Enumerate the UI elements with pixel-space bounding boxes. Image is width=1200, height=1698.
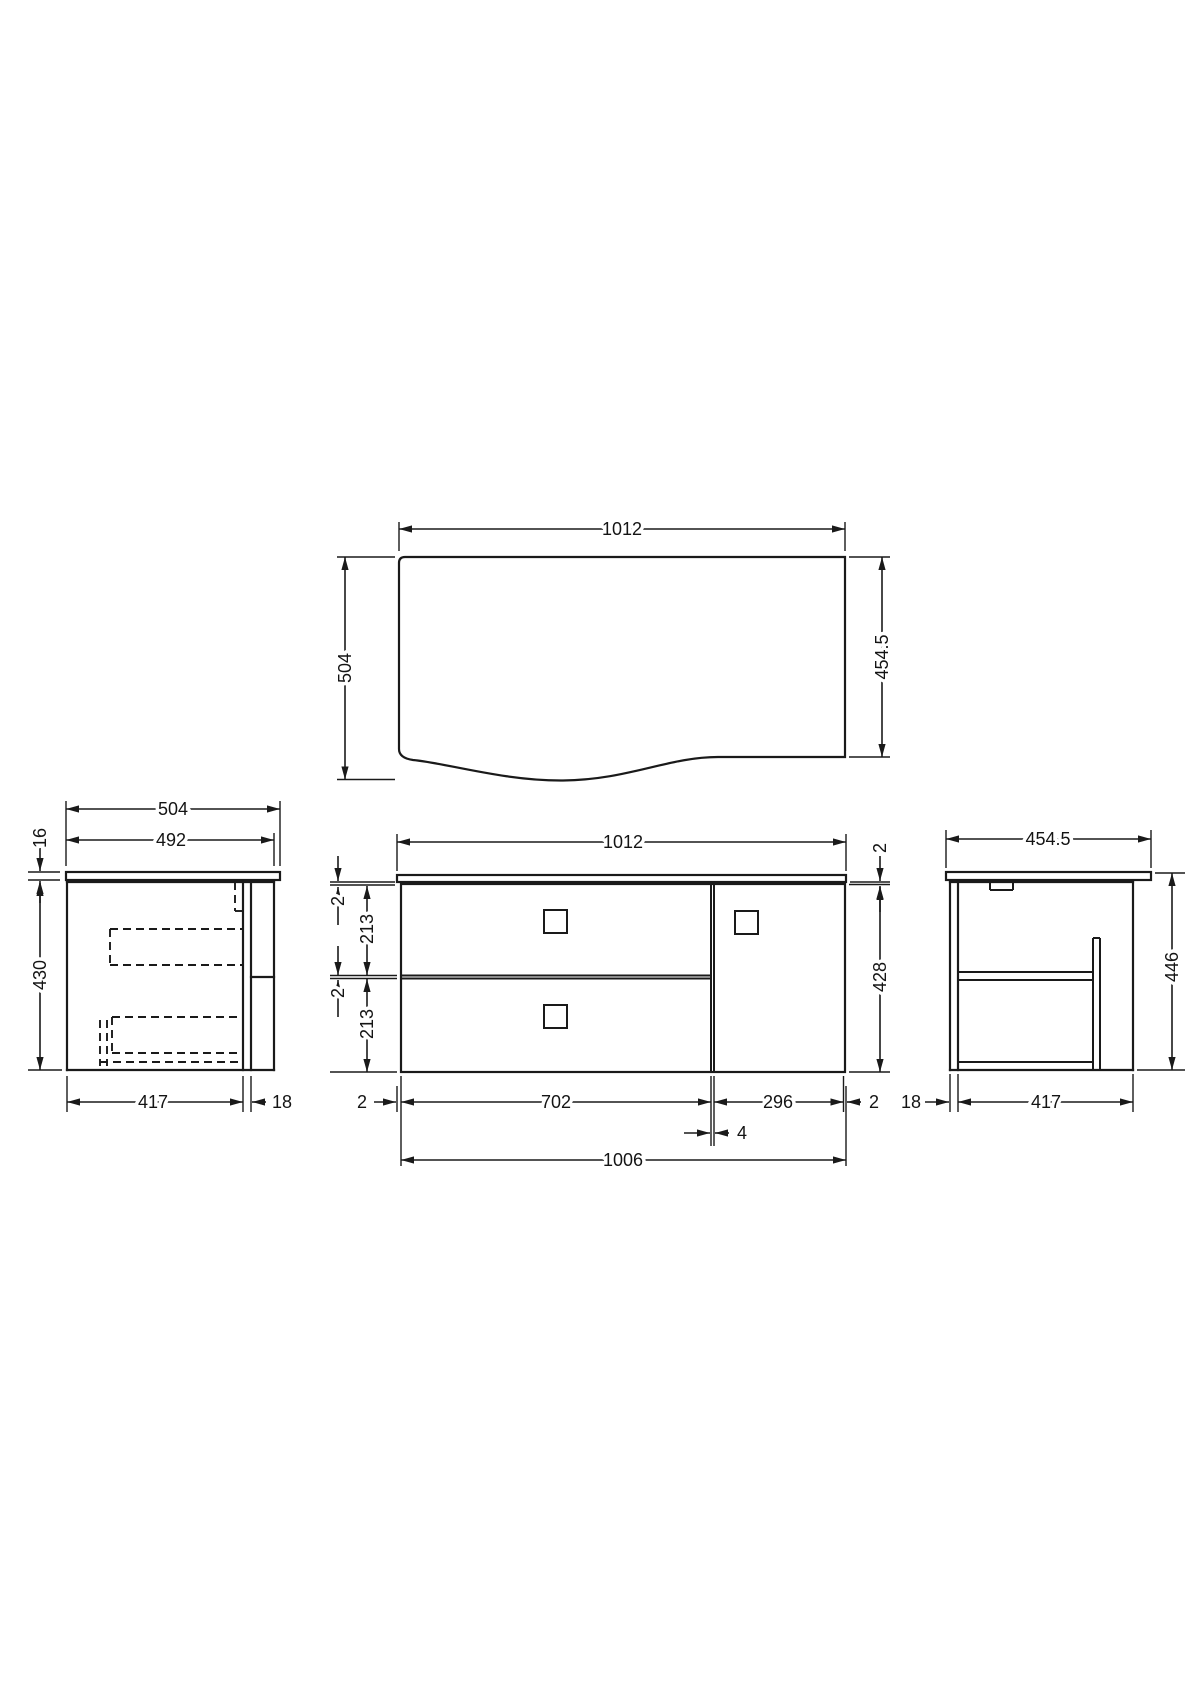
front-worktop <box>397 875 846 882</box>
dim-front-drawer-one-height: 213 <box>357 914 377 944</box>
dim-front-drawer-gap: 2 <box>328 988 348 998</box>
dim-right-overall-depth: 454.5 <box>1025 829 1070 849</box>
dim-front-drawer-section-width: 702 <box>541 1092 571 1112</box>
drawer-one-handle <box>544 910 567 933</box>
dim-front-cabinet-width: 1006 <box>603 1150 643 1170</box>
dim-left-cabinet-height: 430 <box>30 960 50 990</box>
right-side-view: 454.5 446 18 417 <box>901 829 1185 1112</box>
technical-drawing-page: 1012 504 454.5 <box>0 0 1200 1698</box>
dim-right-carcass-depth: 417 <box>1031 1092 1061 1112</box>
right-worktop <box>946 872 1151 880</box>
left-side-view: 504 492 16 430 417 18 <box>28 799 292 1112</box>
left-worktop <box>66 872 280 880</box>
dim-front-bottom-right-gap: 2 <box>869 1092 879 1112</box>
dim-front-door-section-width: 296 <box>763 1092 793 1112</box>
vanity-technical-drawing: 1012 504 454.5 <box>0 0 1200 1698</box>
dim-right-back-thickness: 18 <box>901 1092 921 1112</box>
dim-left-carcass-depth: 417 <box>138 1092 168 1112</box>
front-view: 1012 2 213 2 213 2 428 <box>328 832 890 1170</box>
dim-front-bottom-left-gap: 2 <box>357 1092 367 1112</box>
dim-left-worktop-thickness: 16 <box>30 828 50 848</box>
dim-plan-width: 1012 <box>602 519 642 539</box>
door-handle <box>735 911 758 934</box>
dim-front-top-gap: 2 <box>328 896 348 906</box>
dim-left-front-thickness: 18 <box>272 1092 292 1112</box>
dim-front-divider-width: 4 <box>737 1123 747 1143</box>
dim-front-overall-width: 1012 <box>603 832 643 852</box>
drawer-two-handle <box>544 1005 567 1028</box>
dim-front-cabinet-height: 428 <box>870 962 890 992</box>
dim-plan-depth-right: 454.5 <box>872 634 892 679</box>
plan-outline <box>399 557 845 781</box>
dim-front-right-top-gap: 2 <box>870 843 890 853</box>
dim-plan-depth-left: 504 <box>335 653 355 683</box>
dim-front-drawer-two-height: 213 <box>357 1009 377 1039</box>
dim-right-cabinet-height: 446 <box>1162 952 1182 982</box>
plan-view: 1012 504 454.5 <box>335 519 892 781</box>
dim-left-top-depth: 492 <box>156 830 186 850</box>
dim-left-overall-depth: 504 <box>158 799 188 819</box>
